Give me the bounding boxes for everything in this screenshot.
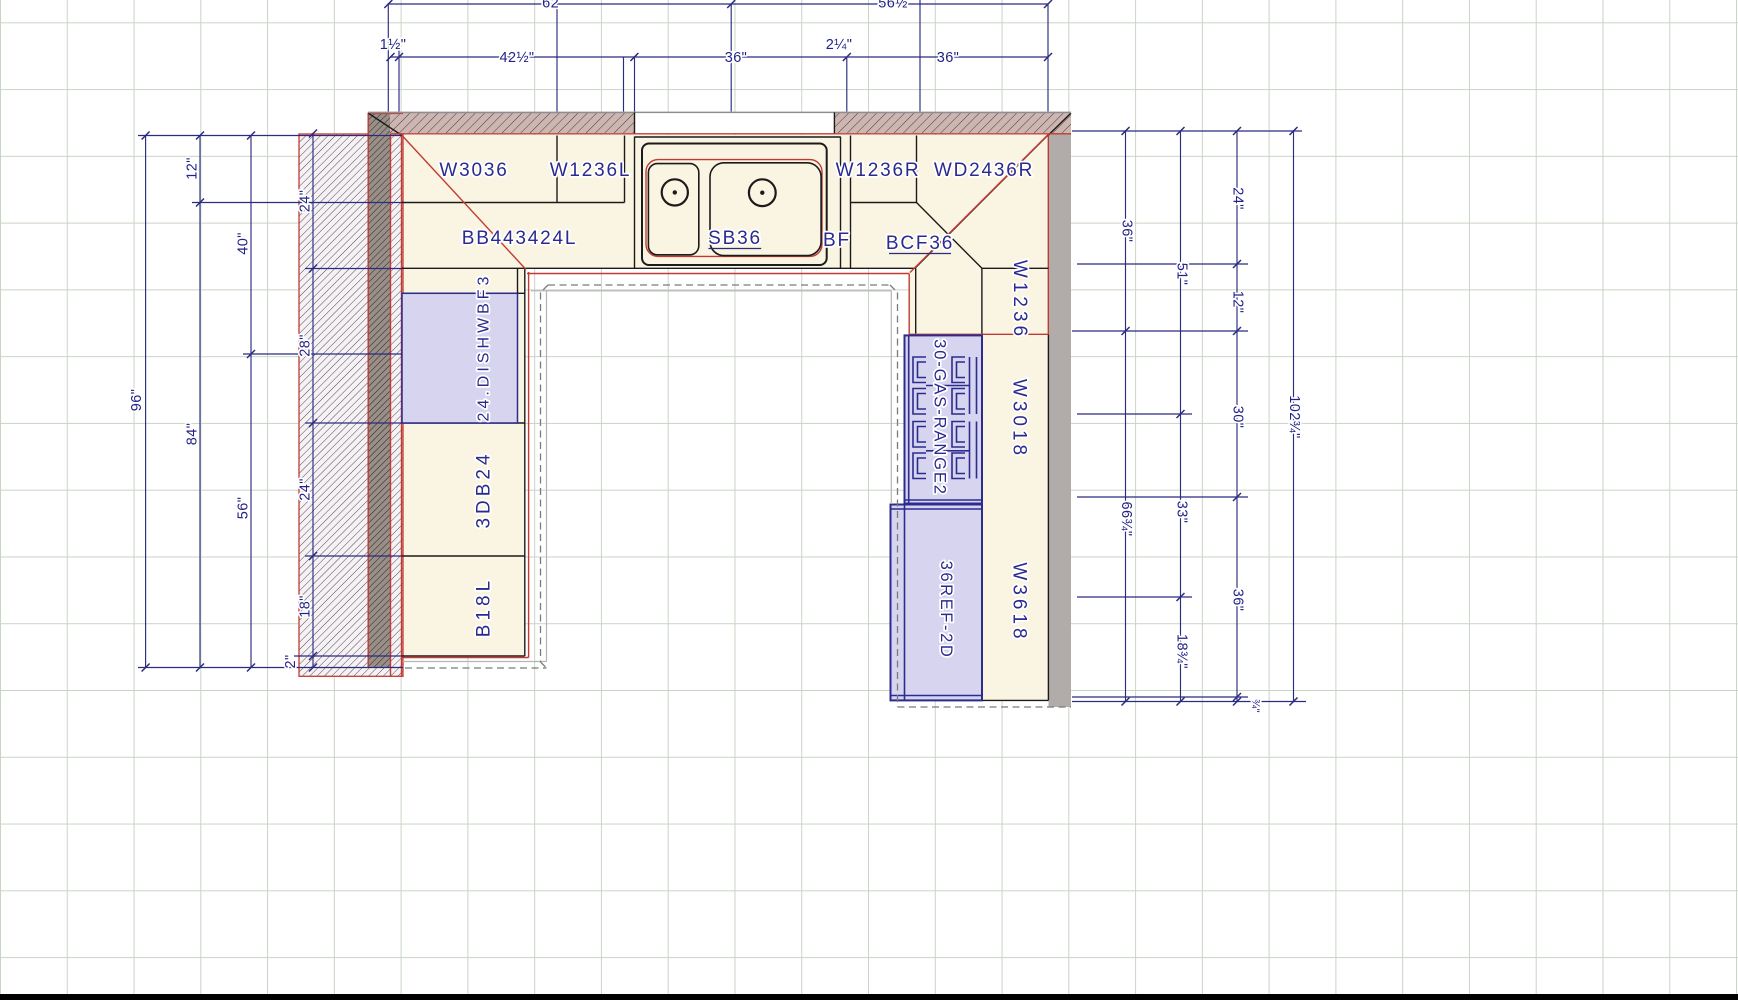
svg-text:12": 12" [1230, 291, 1246, 313]
svg-text:56½: 56½ [878, 0, 907, 12]
svg-text:18¾": 18¾" [1174, 634, 1190, 669]
svg-text:24": 24" [298, 478, 314, 500]
svg-text:BF: BF [823, 230, 851, 251]
svg-text:36": 36" [937, 50, 959, 66]
svg-text:W3618: W3618 [1009, 562, 1030, 642]
svg-text:SB36: SB36 [708, 228, 762, 249]
svg-text:W3018: W3018 [1009, 379, 1030, 459]
svg-text:36": 36" [725, 50, 747, 66]
svg-text:¾": ¾" [1249, 699, 1261, 713]
svg-text:2¼": 2¼" [826, 37, 853, 53]
svg-text:96": 96" [129, 389, 145, 411]
svg-text:BCF36: BCF36 [886, 233, 954, 254]
svg-text:24": 24" [1230, 187, 1246, 209]
svg-text:42½": 42½" [500, 50, 535, 66]
svg-text:3DB24: 3DB24 [474, 450, 495, 528]
svg-text:36": 36" [1230, 589, 1246, 611]
svg-text:2": 2" [283, 654, 299, 668]
svg-text:W1236: W1236 [1009, 260, 1030, 340]
svg-text:30-GAS-RANGE2: 30-GAS-RANGE2 [931, 339, 949, 496]
svg-text:B18L: B18L [474, 577, 495, 637]
svg-text:WD2436R: WD2436R [934, 160, 1034, 181]
svg-text:56": 56" [236, 497, 252, 519]
svg-text:102¾": 102¾" [1286, 395, 1302, 438]
svg-text:40": 40" [236, 232, 252, 254]
svg-text:28": 28" [298, 334, 314, 356]
svg-text:33": 33" [1174, 501, 1190, 523]
svg-text:36REF-2D: 36REF-2D [937, 561, 955, 660]
svg-text:62: 62 [542, 0, 559, 12]
svg-text:24.DISHWBF3: 24.DISHWBF3 [476, 273, 493, 422]
svg-text:W1236L: W1236L [550, 160, 632, 181]
svg-text:W3036: W3036 [439, 160, 508, 181]
svg-text:36": 36" [1119, 220, 1135, 242]
svg-text:24": 24" [298, 190, 314, 212]
svg-text:66¾": 66¾" [1118, 502, 1134, 537]
svg-text:18": 18" [298, 595, 314, 617]
svg-text:84": 84" [185, 423, 201, 445]
svg-text:30": 30" [1230, 406, 1246, 428]
svg-text:BB443424L: BB443424L [462, 228, 578, 249]
svg-text:12": 12" [185, 157, 201, 179]
svg-text:1½": 1½" [380, 37, 407, 53]
svg-text:W1236R: W1236R [836, 160, 921, 181]
svg-text:51": 51" [1174, 263, 1190, 285]
